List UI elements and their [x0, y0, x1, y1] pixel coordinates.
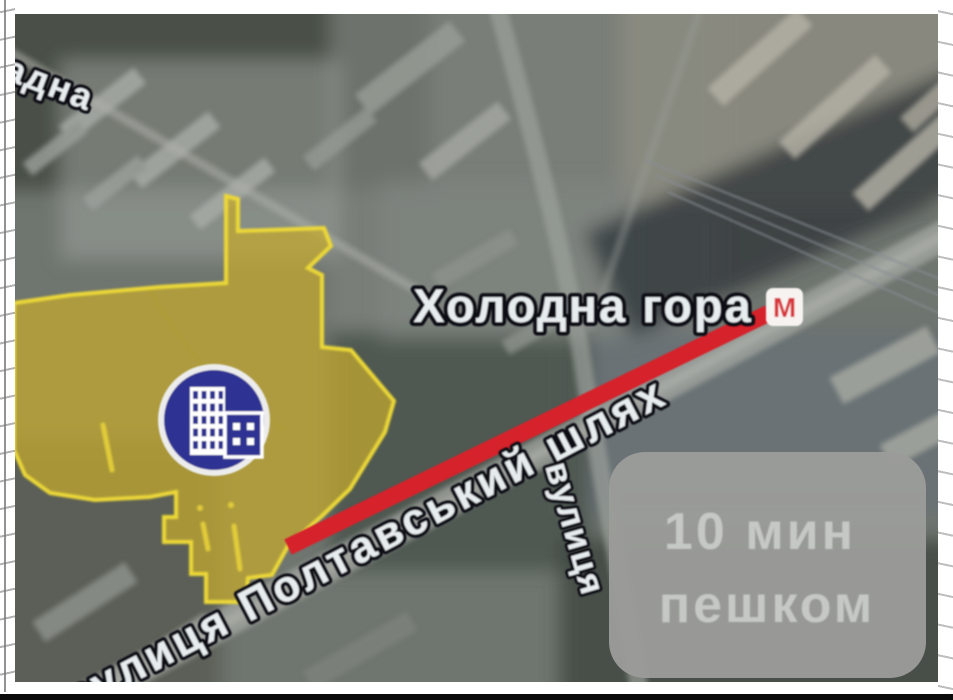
- torn-edge-top: [0, 0, 953, 14]
- torn-edge-right: [938, 0, 953, 700]
- walk-duration: 10 мин: [664, 503, 856, 561]
- walk-time-badge: 10 мин пешком: [609, 452, 926, 678]
- metro-letter: М: [773, 292, 796, 323]
- metro-icon: М: [766, 288, 803, 326]
- satellite-map: адна вулиця Полтавський шлях вулиця Холо…: [15, 14, 938, 682]
- station-label: Холодна гора: [413, 279, 753, 332]
- torn-edge-bottom: [0, 682, 953, 694]
- bottom-black-bar: [0, 694, 953, 700]
- walk-time-badge-bg: [609, 452, 926, 678]
- building-badge-icon: [158, 364, 270, 476]
- map-art: адна вулиця Полтавський шлях вулиця Холо…: [15, 14, 938, 682]
- map-screenshot: адна вулиця Полтавський шлях вулиця Холо…: [0, 0, 953, 700]
- walk-mode: пешком: [659, 576, 876, 634]
- torn-edge-left: [0, 0, 15, 700]
